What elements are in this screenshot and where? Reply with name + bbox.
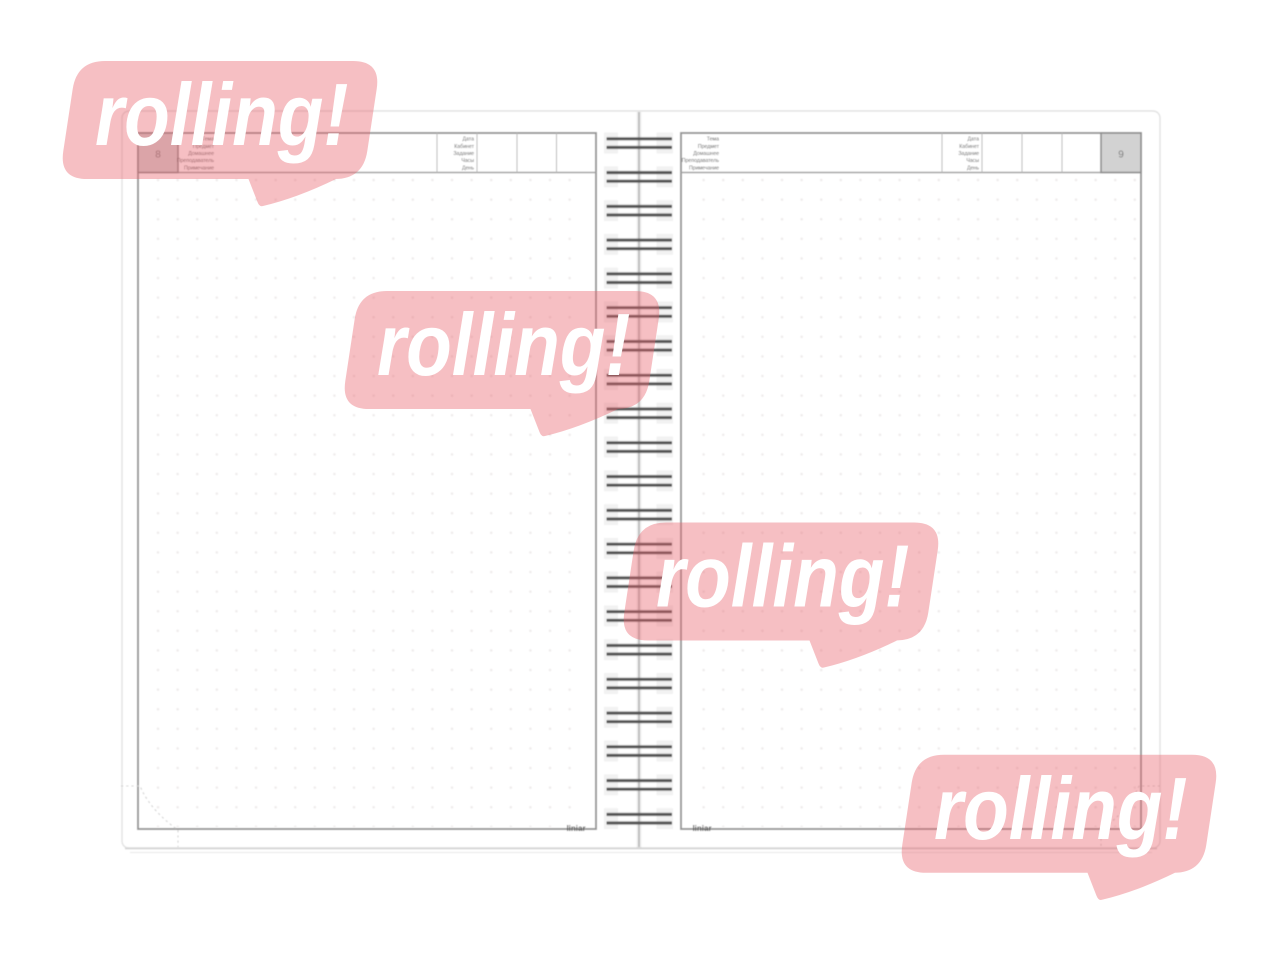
svg-text:Предмет: Предмет: [698, 144, 720, 150]
svg-text:rolling!: rolling!: [656, 528, 909, 626]
svg-text:Домашнее: Домашнее: [693, 151, 719, 157]
svg-text:Дата: Дата: [968, 137, 980, 143]
svg-text:Задание: Задание: [958, 151, 979, 157]
svg-text:liniar: liniar: [692, 824, 711, 833]
svg-text:rolling!: rolling!: [377, 296, 630, 394]
svg-text:rolling!: rolling!: [934, 760, 1187, 858]
svg-text:Задание: Задание: [453, 151, 474, 157]
svg-text:rolling!: rolling!: [95, 66, 348, 164]
svg-text:Кабинет: Кабинет: [454, 144, 474, 150]
svg-text:Преподаватель: Преподаватель: [682, 158, 720, 164]
svg-text:Дата: Дата: [463, 137, 475, 143]
svg-text:Кабинет: Кабинет: [959, 144, 979, 150]
svg-text:День: День: [462, 165, 474, 171]
svg-text:liniar: liniar: [566, 824, 585, 833]
svg-text:День: День: [967, 165, 979, 171]
svg-text:Тема: Тема: [707, 137, 719, 143]
svg-text:Примечание: Примечание: [689, 165, 719, 171]
svg-text:9: 9: [1118, 150, 1124, 161]
svg-text:Часы: Часы: [966, 158, 979, 164]
svg-text:Часы: Часы: [461, 158, 474, 164]
